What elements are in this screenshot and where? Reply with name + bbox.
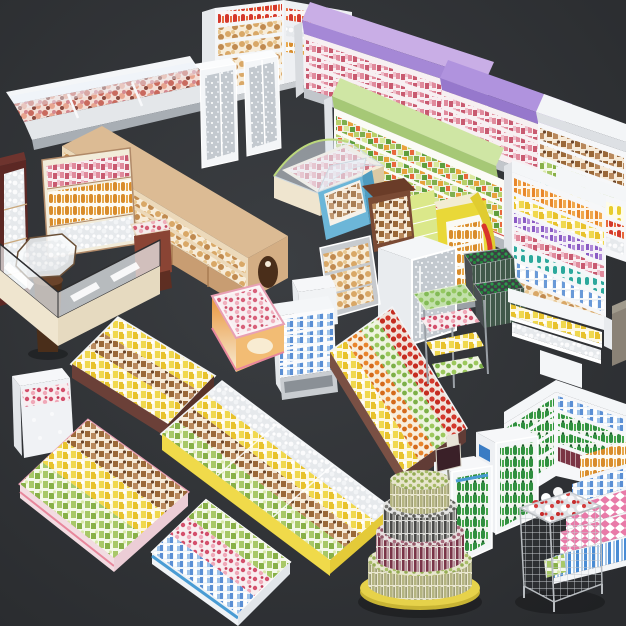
supermarket-render (0, 0, 626, 626)
side-box (612, 300, 626, 366)
render-canvas (0, 0, 626, 626)
wire-basket (515, 487, 605, 614)
